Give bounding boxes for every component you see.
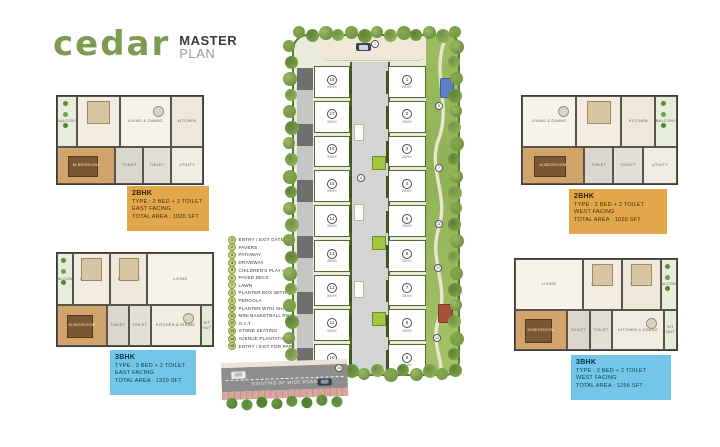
tree-icon (371, 364, 384, 377)
planter-box (372, 156, 386, 170)
room-balcony: BALCONY (57, 96, 77, 147)
legend-label: O.A.T. (239, 321, 253, 326)
planter-box (354, 124, 364, 141)
unit-type-label: 2BHK (402, 120, 412, 124)
room-bedroom: BEDROOM (110, 253, 147, 305)
unit-block: 143BHK (314, 205, 350, 237)
tree-icon (449, 364, 462, 377)
tree-icon (371, 26, 383, 38)
planter-box (354, 281, 364, 298)
room-bedroom: BEDROOM (622, 259, 661, 310)
unit-number: 3 (402, 144, 412, 154)
room-living: LIVING (515, 259, 583, 310)
unit-type-label: 3BHK (327, 189, 337, 193)
planter-box (354, 204, 364, 221)
room-living: LIVING (147, 253, 213, 305)
unit-type-label: 3BHK (327, 294, 337, 298)
tree-icon (423, 364, 437, 378)
tree-icon (283, 267, 297, 281)
unit-number: 9 (402, 353, 412, 363)
unit-number: 12 (327, 283, 337, 293)
legend-number: 15 (228, 342, 236, 350)
tree-icon (285, 251, 298, 264)
unit-number: 17 (327, 109, 337, 119)
room-toilet: TOILET (567, 310, 590, 350)
unit-type-label: 3BHK (327, 85, 337, 89)
room-bedroom: BEDROOM (576, 96, 621, 147)
room-toilet: TOILET (107, 305, 129, 346)
tree-icon (450, 299, 462, 311)
room-balcony: BALCONY (655, 96, 677, 147)
unit-type-label: 3BHK (327, 224, 337, 228)
legend-label: STONE SEATING (239, 328, 278, 333)
bush-icon (256, 397, 267, 408)
unit-facing: WEST FACING (576, 375, 666, 383)
room-master-bedroom: M.BEDROOM (57, 147, 115, 184)
unit-type-label: 3BHK (327, 120, 337, 124)
tree-icon (449, 26, 461, 38)
room-kitchen-dining: KITCHEN & DINING (612, 310, 664, 350)
room-sitout: SIT OUT (664, 310, 677, 350)
bush-icon (331, 396, 342, 407)
legend-number: 8 (228, 289, 236, 297)
room-master-bedroom: M.BEDROOM (522, 147, 584, 184)
unit-block: 22BHK (388, 101, 426, 133)
tree-icon (283, 332, 295, 344)
map-marker: 12 (434, 264, 442, 272)
unit-number: 7 (402, 283, 412, 293)
unit-block: 163BHK (314, 136, 350, 168)
floorplan-3bhk-east: BALCONY BEDROOM BEDROOM LIVING M.BEDROOM… (56, 252, 214, 347)
tree-icon (448, 186, 462, 200)
unit-area: TOTAL AREA : 1310 SFT (115, 378, 191, 386)
unit-area: TOTAL AREA : 1020 SFT (574, 217, 662, 225)
unit-name: 2BHK (132, 190, 204, 197)
tree-icon (450, 40, 464, 54)
room-toilet: TOILET (613, 147, 642, 184)
map-marker: 1 (371, 40, 379, 48)
map-marker: 5 (435, 102, 443, 110)
unit-info-card-2bhk-west: 2BHK TYPE : 2 BED + 2 TOILET WEST FACING… (569, 189, 667, 234)
unit-number: 13 (327, 249, 337, 259)
floorplan-3bhk-west: LIVING BEDROOM BEDROOM BALCONY M.BEDROOM… (514, 258, 678, 351)
legend-label: AVENUE PLANTATION (239, 336, 290, 341)
siteplan: 183BHK173BHK163BHK153BHK143BHK133BHK123B… (283, 24, 465, 382)
unit-name: 3BHK (576, 359, 666, 366)
bush-icon (316, 395, 327, 406)
tree-icon (448, 121, 461, 134)
tree-icon (410, 29, 422, 41)
legend-label: PAVED DECK (239, 275, 269, 280)
room-utility: UTILITY (171, 147, 203, 184)
unit-number: 1 (402, 75, 412, 85)
unit-block: 72BHK (388, 275, 426, 307)
bush-icon (241, 399, 252, 410)
room-utility: UTILITY (643, 147, 677, 184)
legend-label: DRIVEWAY (239, 260, 264, 265)
title-plan: PLAN (179, 47, 237, 60)
master-plan-page: { "header": { "brand": "cedar", "title_t… (0, 0, 720, 447)
bush-icon (301, 397, 312, 408)
unit-type-label: 2BHK (402, 259, 412, 263)
unit-column-west: 183BHK173BHK163BHK153BHK143BHK133BHK123B… (314, 66, 350, 376)
parking-strip (297, 68, 313, 374)
tree-icon (423, 26, 436, 39)
brand-logo: cedar (53, 24, 170, 64)
unit-facing: WEST FACING (574, 209, 662, 217)
tree-icon (384, 29, 397, 42)
map-marker: 4 (357, 174, 365, 182)
tree-icon (450, 137, 464, 151)
floorplan-2bhk-east: BALCONY BEDROOM LIVING & DINING KITCHEN … (56, 95, 204, 185)
unit-block: 173BHK (314, 101, 350, 133)
unit-type-label: 2BHK (402, 329, 412, 333)
legend-label: PERGOLA (239, 298, 262, 303)
tree-icon (397, 364, 409, 376)
legend-label: PATHWAY (239, 252, 262, 257)
tree-icon (283, 40, 295, 52)
map-marker: 13 (433, 334, 441, 342)
legend-label: PAVERS (239, 245, 258, 250)
tree-icon (410, 368, 423, 381)
unit-type-label: 3BHK (327, 155, 337, 159)
unit-type: TYPE : 3 BED + 2 TOILET (115, 363, 191, 371)
unit-number: 11 (327, 318, 337, 328)
legend-number: 10 (228, 304, 236, 312)
legend-number: 5 (228, 266, 236, 274)
unit-type: TYPE : 2 BED + 2 TOILET (574, 202, 662, 210)
tree-icon (450, 105, 462, 117)
bush-icon (271, 398, 282, 409)
tree-icon (332, 29, 344, 41)
tree-icon (285, 89, 297, 101)
legend-label: ENTRY / EXIT GATE (239, 237, 284, 242)
tree-icon (293, 26, 305, 38)
planter-box (372, 312, 386, 326)
legend-number: 3 (228, 251, 236, 259)
unit-block: 82BHK (388, 309, 426, 341)
unit-type-label: 2BHK (402, 189, 412, 193)
room-master-bedroom: M.BEDROOM (515, 310, 567, 350)
unit-info-card-3bhk-west: 3BHK TYPE : 3 BED + 2 TOILET WEST FACING… (571, 355, 671, 400)
bush-icon (286, 396, 297, 407)
room-kitchen: KITCHEN (171, 96, 203, 147)
tree-icon (358, 368, 370, 380)
tree-icon (358, 29, 372, 43)
unit-number: 8 (402, 318, 412, 328)
room-toilet: TOILET (129, 305, 151, 346)
unit-info-card-3bhk-east: 3BHK TYPE : 3 BED + 2 TOILET EAST FACING… (110, 350, 196, 395)
tree-icon (319, 26, 333, 40)
tree-icon (283, 105, 296, 118)
tree-icon (450, 234, 464, 248)
unit-area: TOTAL AREA : 1256 SFT (576, 383, 666, 391)
unit-facing: EAST FACING (132, 206, 204, 214)
unit-info-card-2bhk-east: 2BHK TYPE : 2 BED + 2 TOILET EAST FACING… (127, 186, 209, 231)
tree-icon (384, 368, 398, 382)
tree-icon (448, 283, 462, 297)
unit-block: 42BHK (388, 170, 426, 202)
tree-icon (397, 26, 411, 40)
room-living-dining: LIVING & DINING (522, 96, 576, 147)
tree-icon (285, 121, 299, 135)
unit-type: TYPE : 3 BED + 2 TOILET (576, 368, 666, 376)
room-toilet: TOILET (590, 310, 613, 350)
unit-number: 14 (327, 214, 337, 224)
unit-block: 32BHK (388, 136, 426, 168)
room-toilet: TOILET (584, 147, 613, 184)
room-balcony: BALCONY (57, 253, 73, 305)
unit-block: 113BHK (314, 309, 350, 341)
room-living-dining: LIVING & DINING (120, 96, 171, 147)
unit-type-label: 2BHK (402, 155, 412, 159)
unit-block: 153BHK (314, 170, 350, 202)
tree-icon (285, 186, 297, 198)
car-icon (356, 43, 371, 51)
room-toilet: TOILET (115, 147, 143, 184)
room-balcony: BALCONY (661, 259, 677, 310)
tree-icon (450, 72, 463, 85)
planter-box (372, 236, 386, 250)
unit-name: 2BHK (574, 193, 662, 200)
unit-type-label: 2BHK (402, 85, 412, 89)
tree-icon (306, 29, 319, 42)
unit-number: 15 (327, 179, 337, 189)
unit-type-label: 2BHK (402, 294, 412, 298)
unit-number: 5 (402, 214, 412, 224)
tree-icon (283, 170, 297, 184)
room-kitchen-dining: KITCHEN & DINING (151, 305, 201, 346)
unit-block: 123BHK (314, 275, 350, 307)
map-marker: 11 (435, 220, 443, 228)
tree-icon (448, 251, 460, 263)
unit-column-east: 12BHK22BHK32BHK42BHK52BHK62BHK72BHK82BHK… (388, 66, 426, 376)
unit-block: 12BHK (388, 66, 426, 98)
unit-area: TOTAL AREA : 1020 SFT (132, 214, 204, 222)
compound-boundary: 183BHK173BHK163BHK153BHK143BHK133BHK123B… (292, 34, 460, 376)
unit-block: 52BHK (388, 205, 426, 237)
floorplan-2bhk-west: LIVING & DINING BEDROOM KITCHEN BALCONY … (521, 95, 678, 185)
unit-block: 183BHK (314, 66, 350, 98)
unit-type-label: 3BHK (327, 329, 337, 333)
unit-number: 18 (327, 75, 337, 85)
map-marker: 15 (335, 364, 343, 372)
tree-icon (283, 202, 296, 215)
room-bedroom: BEDROOM (77, 96, 119, 147)
car-icon (230, 370, 246, 380)
tree-icon (448, 348, 460, 360)
tree-icon (450, 267, 463, 280)
tree-icon (345, 26, 358, 39)
unit-number: 6 (402, 249, 412, 259)
tree-icon (450, 170, 463, 183)
room-bedroom: BEDROOM (73, 253, 110, 305)
tree-icon (436, 29, 450, 43)
avenue-plantation (222, 392, 348, 412)
room-sitout: SIT OUT (201, 305, 213, 346)
unit-type: TYPE : 2 BED + 2 TOILET (132, 199, 204, 207)
room-master-bedroom: M.BEDROOM (57, 305, 107, 346)
tree-icon (285, 348, 298, 361)
unit-facing: EAST FACING (115, 370, 191, 378)
room-kitchen: KITCHEN (621, 96, 655, 147)
tree-icon (436, 368, 448, 380)
legend-label: LAWN (239, 283, 253, 288)
bush-icon (226, 398, 237, 409)
unit-type-label: 2BHK (402, 224, 412, 228)
road-zone: EXISTING 30' WIDE ROAD (221, 359, 349, 423)
tree-icon (450, 202, 462, 214)
map-marker: 7 (435, 164, 443, 172)
unit-block: 133BHK (314, 240, 350, 272)
tree-icon (285, 283, 297, 295)
room-toilet: TOILET (143, 147, 171, 184)
unit-block: 62BHK (388, 240, 426, 272)
unit-number: 4 (402, 179, 412, 189)
unit-name: 3BHK (115, 354, 191, 361)
legend-number: 13 (228, 327, 236, 335)
unit-number: 2 (402, 109, 412, 119)
page-title: MASTER PLAN (179, 28, 237, 60)
unit-number: 16 (327, 144, 337, 154)
tree-icon (448, 89, 462, 103)
unit-type-label: 3BHK (327, 259, 337, 263)
room-bedroom: BEDROOM (583, 259, 622, 310)
tree-icon (450, 332, 464, 346)
header: cedar MASTER PLAN (53, 24, 237, 64)
